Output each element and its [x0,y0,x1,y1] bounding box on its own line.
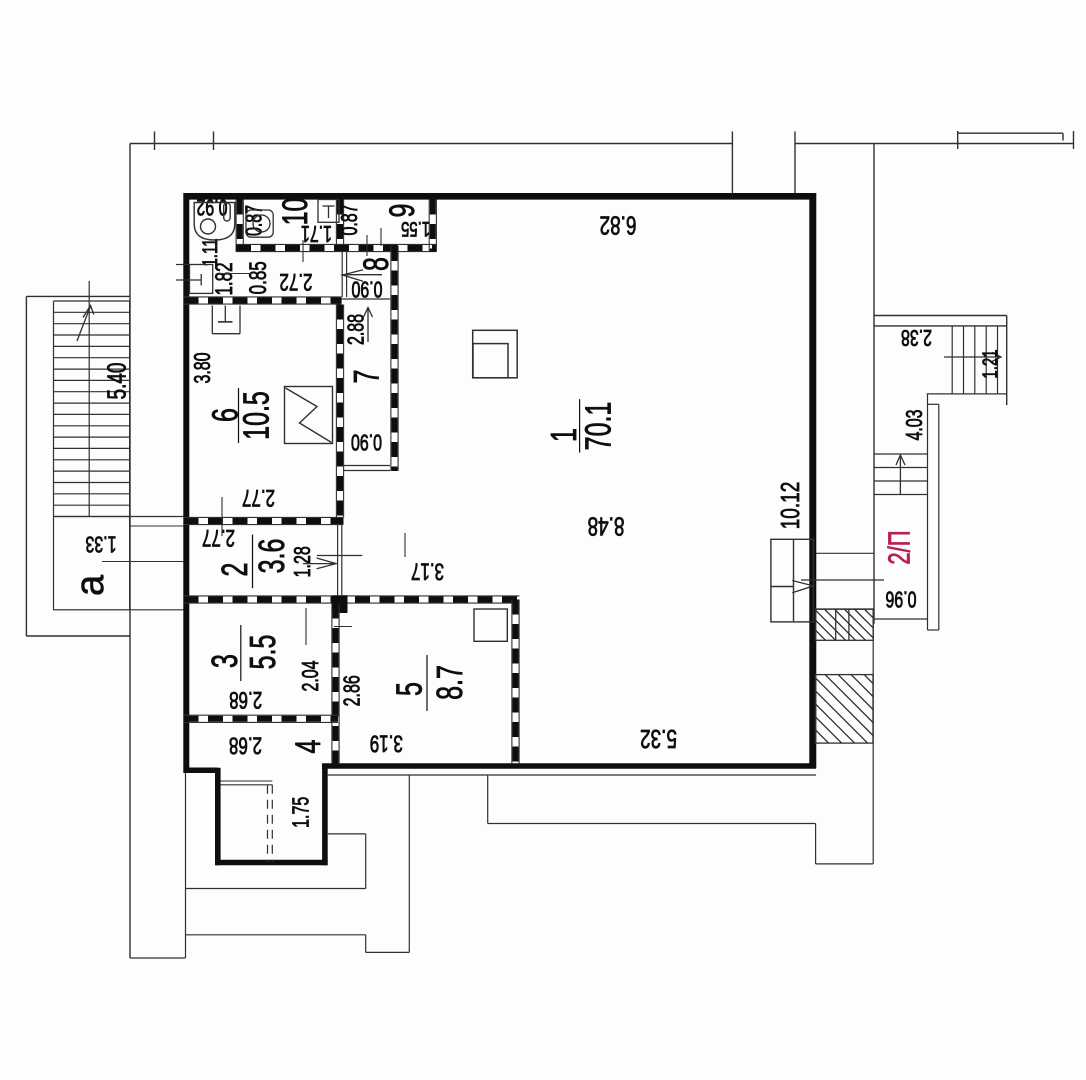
svg-text:0.90: 0.90 [351,428,382,453]
svg-text:3.17: 3.17 [411,558,444,585]
svg-text:2.86: 2.86 [340,675,365,706]
svg-text:1.75: 1.75 [289,797,314,828]
svg-text:3.19: 3.19 [370,730,403,757]
svg-text:5.32: 5.32 [640,724,677,752]
svg-text:3.6: 3.6 [251,539,292,574]
svg-text:8.48: 8.48 [588,512,625,540]
svg-text:0.92: 0.92 [196,193,227,218]
svg-text:2.68: 2.68 [229,732,262,759]
svg-text:2.68: 2.68 [229,686,262,713]
svg-text:1.82: 1.82 [211,262,238,295]
svg-text:3.80: 3.80 [191,352,216,383]
svg-text:1.21: 1.21 [978,349,1002,378]
svg-text:10.5: 10.5 [236,391,277,440]
svg-text:6.82: 6.82 [600,211,637,239]
svg-text:9: 9 [383,204,422,218]
svg-text:70.1: 70.1 [578,402,619,451]
svg-text:10.12: 10.12 [776,482,804,530]
svg-text:4: 4 [289,739,328,753]
svg-text:2.38: 2.38 [901,324,932,349]
svg-text:2/П: 2/П [882,530,917,564]
svg-text:8.7: 8.7 [429,665,470,700]
svg-text:a: a [68,575,112,596]
svg-text:2.72: 2.72 [279,268,312,295]
svg-text:4.03: 4.03 [903,409,928,440]
svg-text:5: 5 [389,682,430,696]
svg-text:2.77: 2.77 [202,524,235,551]
svg-text:7: 7 [348,370,387,384]
svg-text:2: 2 [214,563,255,577]
svg-text:0.85: 0.85 [245,261,272,294]
svg-text:2.88: 2.88 [344,314,369,345]
svg-text:0.87: 0.87 [338,204,363,235]
svg-text:8: 8 [357,257,396,271]
svg-text:2.04: 2.04 [299,660,324,691]
svg-text:5.40: 5.40 [103,363,131,400]
svg-text:2.77: 2.77 [242,484,275,511]
svg-text:0.96: 0.96 [885,585,916,610]
svg-text:1.28: 1.28 [291,546,316,577]
svg-text:1.33: 1.33 [85,530,116,555]
svg-text:1.71: 1.71 [301,220,332,245]
svg-text:1.55: 1.55 [401,217,430,241]
svg-text:3: 3 [204,654,245,668]
svg-text:5.5: 5.5 [242,635,283,670]
